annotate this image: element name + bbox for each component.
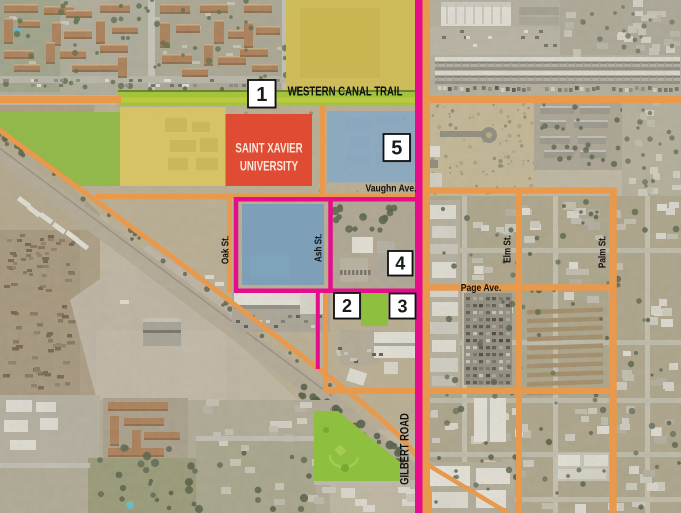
svg-text:SAINT XAVIER: SAINT XAVIER — [235, 141, 303, 156]
svg-text:5: 5 — [391, 138, 402, 160]
svg-text:Elm St.: Elm St. — [502, 235, 513, 263]
svg-text:WESTERN CANAL TRAIL: WESTERN CANAL TRAIL — [288, 85, 403, 99]
svg-text:UNIVERSITY: UNIVERSITY — [240, 159, 298, 174]
svg-text:Palm St.: Palm St. — [597, 236, 608, 268]
svg-text:3: 3 — [397, 296, 407, 316]
svg-text:1: 1 — [256, 84, 267, 106]
svg-text:Page Ave.: Page Ave. — [461, 282, 501, 294]
svg-text:Ash St.: Ash St. — [313, 234, 324, 262]
svg-text:Oak St.: Oak St. — [220, 236, 231, 264]
svg-text:GILBERT ROAD: GILBERT ROAD — [399, 413, 412, 485]
svg-text:4: 4 — [395, 254, 405, 274]
svg-text:Vaughn Ave.: Vaughn Ave. — [365, 183, 416, 195]
svg-text:2: 2 — [342, 296, 352, 316]
